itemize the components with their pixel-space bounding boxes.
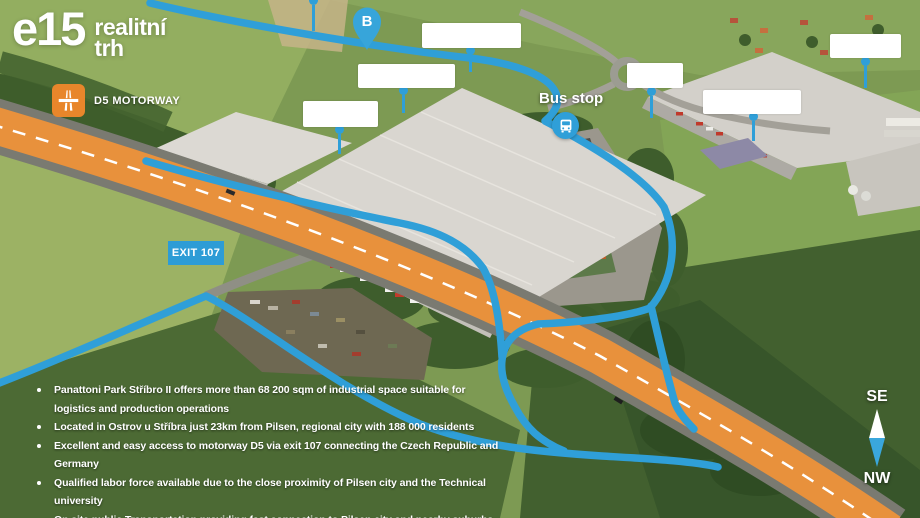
d5-motorway-label: D5 MOTORWAY <box>52 84 180 117</box>
motorway-icon <box>52 84 85 117</box>
bullet-dot <box>37 388 41 392</box>
marker-b-label: B <box>350 13 384 30</box>
bullet-dot <box>37 481 41 485</box>
callout-box-5 <box>703 90 801 114</box>
callout-box-2 <box>358 64 455 88</box>
callout-pin-6 <box>861 57 870 88</box>
facts-list: Panattoni Park Stříbro II offers more th… <box>34 381 506 518</box>
compass-arrow-icon <box>868 409 886 467</box>
fact-item: Panattoni Park Stříbro II offers more th… <box>34 381 506 418</box>
compass-nw-label: NW <box>864 470 891 488</box>
exit-107-label: EXIT 107 <box>168 241 224 265</box>
bus-stop-label: Bus stop <box>539 90 603 107</box>
logo-subtitle: realitní trh <box>94 17 165 60</box>
fact-item: Excellent and easy access to motorway D5… <box>34 437 506 474</box>
callout-pin-5 <box>749 112 758 141</box>
callout-box-4 <box>627 63 683 88</box>
logo-e15: e15 <box>12 8 84 50</box>
fact-item: Located in Ostrov u Stříbra just 23km fr… <box>34 418 506 437</box>
callout-pin-1 <box>466 46 475 72</box>
callout-pin-2 <box>399 86 408 113</box>
bullet-dot <box>37 425 41 429</box>
callout-box-1 <box>422 23 521 48</box>
bus-icon <box>552 112 579 139</box>
slide-aerial-location-map: e15 realitní trh D5 MOTORWAY EXIT 107 Bu… <box>0 0 920 518</box>
fact-item: On site public Transportation providing … <box>34 511 506 518</box>
callout-pin-3 <box>335 125 344 154</box>
callout-pin-7 <box>309 0 318 31</box>
compass-se-label: SE <box>866 388 887 406</box>
bullet-dot <box>37 444 41 448</box>
logo-subtitle-line2: trh <box>94 38 165 59</box>
d5-motorway-text: D5 MOTORWAY <box>94 95 180 107</box>
callout-pin-4 <box>647 87 656 118</box>
logo: e15 realitní trh <box>12 8 166 60</box>
callout-box-6 <box>830 34 901 58</box>
callout-box-3 <box>303 101 378 127</box>
compass: SE NW <box>854 388 900 488</box>
fact-item: Qualified labor force available due to t… <box>34 474 506 511</box>
